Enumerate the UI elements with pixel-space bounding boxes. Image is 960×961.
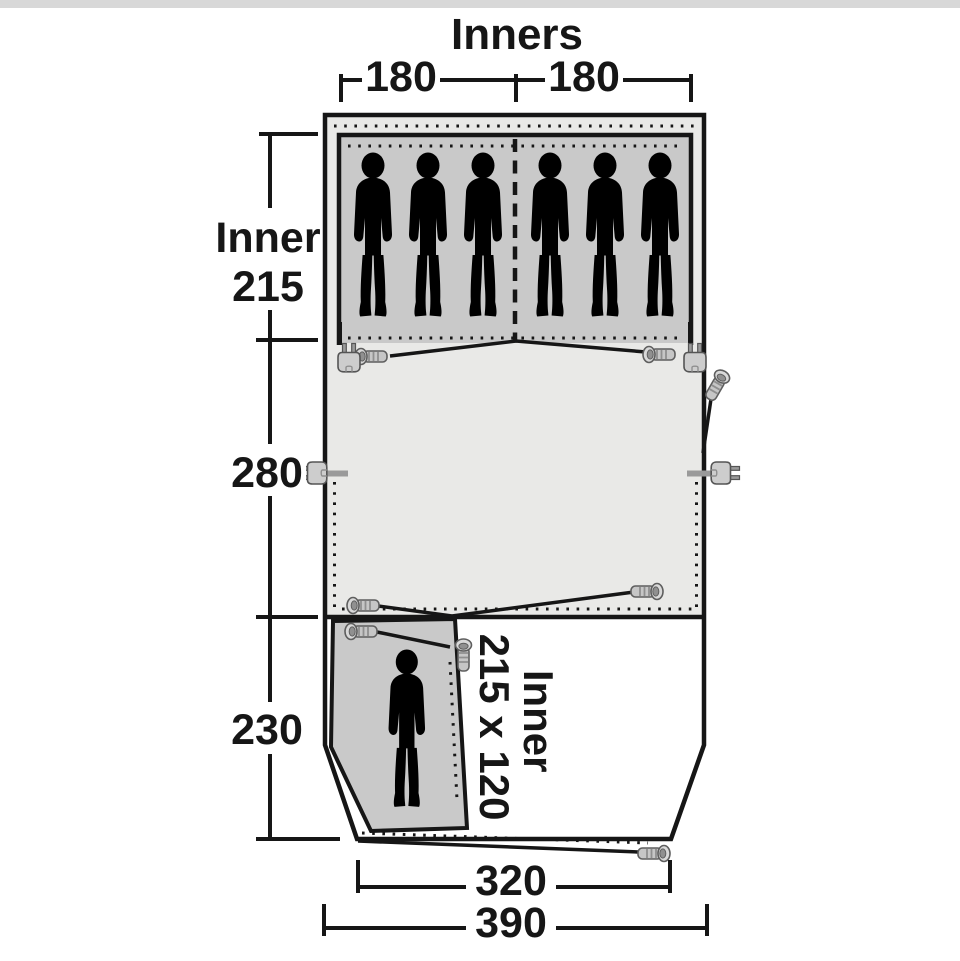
dim-label-sleeping-word: Inner xyxy=(215,214,320,262)
tent-peg-icon xyxy=(347,598,379,614)
dim-bottom: 320 390 xyxy=(324,857,707,947)
small-inner-label-size: 215 x 120 xyxy=(471,634,518,821)
dim-top: 180 180 xyxy=(341,53,691,102)
inner-corner-zip xyxy=(688,322,693,345)
dim-label-living-depth: 280 xyxy=(231,449,303,497)
dim-label-inner-right: 180 xyxy=(548,53,620,101)
small-inner-label-word: Inner xyxy=(515,670,562,773)
dim-label-bottom-outer: 390 xyxy=(475,899,547,947)
dim-label-inner-left: 180 xyxy=(365,53,437,101)
dim-left: Inner 215 280 230 xyxy=(215,134,340,841)
guy-line xyxy=(358,841,638,852)
plug-cable xyxy=(687,471,711,477)
tent-peg-icon xyxy=(631,584,663,600)
tent-peg-icon xyxy=(638,846,670,862)
top-strip xyxy=(0,0,960,8)
tent-peg-icon xyxy=(456,639,472,671)
inner-corner-zip xyxy=(337,322,342,345)
dim-label-front-depth: 230 xyxy=(231,706,303,754)
tent-peg-icon xyxy=(643,347,675,363)
diagram-title: Inners xyxy=(451,10,583,59)
tent-peg-icon xyxy=(345,624,377,640)
power-plug-icon xyxy=(711,462,739,484)
sleeping-inner xyxy=(337,135,693,356)
dim-label-sleeping-depth: 215 xyxy=(232,263,304,311)
tent-floorplan-diagram: Inners xyxy=(0,0,960,961)
dim-label-bottom-inner: 320 xyxy=(475,857,547,905)
tent-peg-icon xyxy=(702,367,732,403)
tent-floorplan-page: Inners xyxy=(0,0,960,961)
plug-cable xyxy=(326,471,348,477)
